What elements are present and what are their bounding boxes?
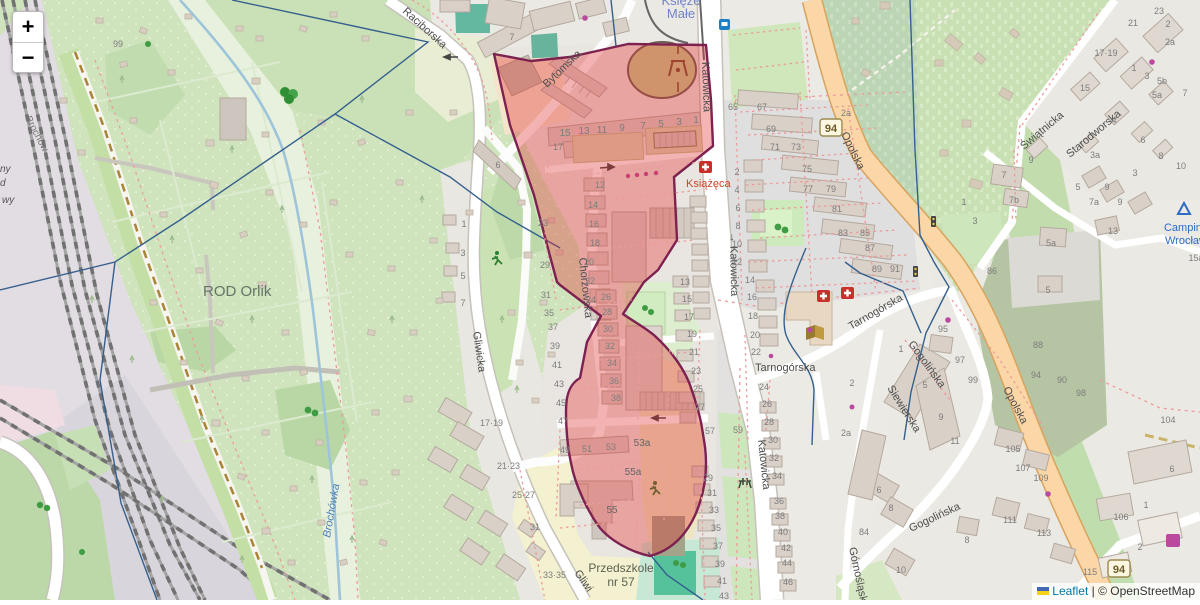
svg-text:5b: 5b bbox=[1157, 76, 1167, 86]
svg-text:7b: 7b bbox=[1009, 195, 1019, 205]
svg-text:8: 8 bbox=[1158, 151, 1163, 161]
svg-text:6: 6 bbox=[495, 160, 500, 170]
svg-text:12: 12 bbox=[732, 257, 742, 267]
svg-text:111: 111 bbox=[1003, 515, 1017, 525]
svg-text:wy: wy bbox=[2, 195, 15, 206]
svg-text:5a: 5a bbox=[1152, 90, 1162, 100]
svg-text:25: 25 bbox=[693, 384, 703, 394]
svg-text:43: 43 bbox=[554, 379, 564, 389]
svg-text:2a: 2a bbox=[841, 108, 851, 118]
svg-text:25·27: 25·27 bbox=[512, 490, 535, 500]
svg-text:89: 89 bbox=[872, 264, 882, 274]
svg-text:Małe: Małe bbox=[667, 6, 695, 21]
svg-text:16: 16 bbox=[589, 219, 599, 229]
svg-text:95: 95 bbox=[938, 324, 948, 334]
svg-text:53: 53 bbox=[606, 442, 616, 452]
svg-text:8: 8 bbox=[964, 535, 969, 545]
svg-text:36: 36 bbox=[774, 496, 784, 506]
svg-text:99: 99 bbox=[113, 39, 123, 49]
svg-text:9: 9 bbox=[1117, 197, 1122, 207]
svg-text:106: 106 bbox=[1113, 512, 1128, 522]
svg-text:ROD Orlik: ROD Orlik bbox=[203, 283, 272, 300]
svg-text:15: 15 bbox=[1080, 83, 1090, 93]
svg-text:20: 20 bbox=[750, 330, 760, 340]
svg-text:99: 99 bbox=[968, 375, 978, 385]
svg-text:97: 97 bbox=[955, 355, 965, 365]
svg-text:10: 10 bbox=[1176, 161, 1186, 171]
svg-text:11: 11 bbox=[597, 125, 608, 136]
svg-text:d: d bbox=[0, 178, 6, 189]
svg-text:1: 1 bbox=[693, 115, 699, 126]
svg-text:21: 21 bbox=[1128, 18, 1138, 28]
svg-text:32: 32 bbox=[769, 453, 779, 463]
svg-text:35: 35 bbox=[544, 308, 554, 318]
svg-text:109: 109 bbox=[1033, 473, 1048, 483]
svg-text:31: 31 bbox=[541, 290, 551, 300]
svg-text:3: 3 bbox=[460, 248, 465, 258]
svg-text:Camping: Camping bbox=[1164, 222, 1200, 234]
svg-text:41: 41 bbox=[717, 576, 727, 586]
svg-text:27: 27 bbox=[695, 402, 705, 412]
svg-text:Tarnogórska: Tarnogórska bbox=[755, 362, 816, 374]
svg-text:39: 39 bbox=[715, 559, 725, 569]
svg-text:5a: 5a bbox=[1046, 238, 1056, 248]
svg-text:15: 15 bbox=[682, 294, 692, 304]
svg-text:90: 90 bbox=[1057, 375, 1067, 385]
svg-text:1: 1 bbox=[1131, 63, 1136, 73]
svg-text:30: 30 bbox=[768, 435, 778, 445]
svg-text:34: 34 bbox=[772, 471, 782, 481]
svg-text:9: 9 bbox=[1104, 182, 1109, 192]
svg-text:10: 10 bbox=[732, 239, 742, 249]
svg-text:104: 104 bbox=[1160, 415, 1175, 425]
svg-text:22: 22 bbox=[751, 347, 761, 357]
svg-text:Książęca: Książęca bbox=[686, 178, 732, 190]
svg-text:17: 17 bbox=[553, 142, 563, 152]
svg-text:29: 29 bbox=[703, 473, 713, 483]
svg-text:2: 2 bbox=[849, 378, 854, 388]
svg-text:43: 43 bbox=[719, 591, 729, 600]
svg-text:2: 2 bbox=[734, 167, 739, 177]
svg-text:23: 23 bbox=[691, 366, 701, 376]
svg-text:3: 3 bbox=[1132, 168, 1137, 178]
svg-text:41: 41 bbox=[552, 360, 562, 370]
svg-text:37: 37 bbox=[713, 541, 723, 551]
svg-text:10: 10 bbox=[896, 565, 906, 575]
svg-text:3: 3 bbox=[972, 216, 977, 226]
svg-text:13: 13 bbox=[578, 126, 590, 137]
svg-text:5: 5 bbox=[1075, 182, 1080, 192]
svg-text:81: 81 bbox=[832, 204, 842, 214]
svg-text:1: 1 bbox=[961, 197, 966, 207]
svg-text:57: 57 bbox=[705, 426, 715, 436]
svg-text:29: 29 bbox=[540, 260, 550, 270]
svg-text:115: 115 bbox=[1083, 567, 1097, 577]
svg-text:32: 32 bbox=[605, 341, 615, 351]
svg-text:44: 44 bbox=[782, 558, 792, 568]
svg-text:7: 7 bbox=[1182, 88, 1187, 98]
svg-text:59: 59 bbox=[733, 425, 743, 435]
svg-text:8: 8 bbox=[888, 503, 893, 513]
svg-text:5: 5 bbox=[460, 271, 465, 281]
svg-text:2: 2 bbox=[1137, 542, 1142, 552]
svg-text:39: 39 bbox=[550, 341, 560, 351]
svg-text:13: 13 bbox=[680, 277, 690, 287]
svg-text:40: 40 bbox=[778, 527, 788, 537]
svg-text:98: 98 bbox=[1076, 388, 1086, 398]
svg-text:14: 14 bbox=[588, 200, 598, 210]
svg-text:71: 71 bbox=[770, 142, 780, 152]
svg-text:55: 55 bbox=[606, 505, 618, 516]
svg-text:Wrocław: Wrocław bbox=[1165, 235, 1200, 247]
svg-text:18: 18 bbox=[748, 311, 758, 321]
svg-text:7: 7 bbox=[640, 121, 646, 132]
svg-text:37: 37 bbox=[548, 322, 558, 332]
svg-text:3: 3 bbox=[676, 117, 682, 128]
svg-text:17·19: 17·19 bbox=[480, 418, 503, 428]
svg-text:18: 18 bbox=[590, 238, 600, 248]
svg-text:6: 6 bbox=[1140, 135, 1145, 145]
svg-text:ny: ny bbox=[0, 164, 12, 175]
svg-text:75: 75 bbox=[802, 164, 812, 174]
svg-text:7: 7 bbox=[460, 298, 465, 308]
svg-text:7: 7 bbox=[509, 32, 514, 42]
svg-text:2: 2 bbox=[1165, 19, 1170, 29]
svg-text:51: 51 bbox=[582, 444, 592, 454]
svg-text:23: 23 bbox=[1154, 6, 1164, 16]
svg-text:30: 30 bbox=[603, 324, 613, 334]
svg-text:94: 94 bbox=[1113, 564, 1126, 576]
svg-text:7a: 7a bbox=[1089, 197, 1099, 207]
svg-text:26: 26 bbox=[762, 399, 772, 409]
svg-text:15: 15 bbox=[559, 128, 571, 139]
svg-text:67: 67 bbox=[757, 102, 767, 112]
svg-text:94: 94 bbox=[1031, 370, 1041, 380]
svg-text:38: 38 bbox=[611, 393, 621, 403]
svg-text:1: 1 bbox=[1143, 500, 1148, 510]
svg-text:2a: 2a bbox=[841, 428, 851, 438]
svg-text:45: 45 bbox=[556, 398, 566, 408]
svg-text:107: 107 bbox=[1015, 463, 1030, 473]
svg-text:85: 85 bbox=[860, 228, 870, 238]
svg-text:4: 4 bbox=[734, 185, 739, 195]
svg-text:34: 34 bbox=[607, 358, 617, 368]
svg-text:28: 28 bbox=[764, 417, 774, 427]
svg-text:11: 11 bbox=[950, 436, 959, 446]
svg-text:22: 22 bbox=[585, 276, 595, 286]
svg-text:17: 17 bbox=[684, 312, 694, 322]
svg-text:94: 94 bbox=[825, 123, 838, 135]
svg-text:5: 5 bbox=[658, 119, 664, 130]
svg-text:24: 24 bbox=[759, 382, 769, 392]
svg-text:21·23: 21·23 bbox=[497, 461, 520, 471]
svg-text:24: 24 bbox=[586, 295, 596, 305]
svg-text:Przedszkole: Przedszkole bbox=[588, 561, 654, 575]
svg-text:6: 6 bbox=[1169, 464, 1174, 474]
svg-text:1: 1 bbox=[898, 344, 903, 354]
svg-text:1: 1 bbox=[461, 219, 466, 229]
svg-text:53a: 53a bbox=[634, 438, 651, 449]
svg-text:33·35: 33·35 bbox=[543, 570, 566, 580]
svg-text:15a: 15a bbox=[1188, 253, 1200, 263]
svg-text:9: 9 bbox=[1028, 155, 1033, 165]
svg-text:nr 57: nr 57 bbox=[607, 575, 635, 589]
svg-text:5: 5 bbox=[922, 380, 927, 390]
svg-text:6: 6 bbox=[735, 203, 740, 213]
svg-text:6: 6 bbox=[876, 485, 881, 495]
svg-text:14: 14 bbox=[745, 275, 755, 285]
svg-text:16: 16 bbox=[747, 292, 757, 302]
svg-text:26: 26 bbox=[601, 292, 611, 302]
svg-text:47: 47 bbox=[558, 416, 568, 426]
svg-text:79: 79 bbox=[826, 184, 836, 194]
svg-text:84: 84 bbox=[859, 527, 869, 537]
svg-text:38: 38 bbox=[775, 511, 785, 521]
svg-text:13: 13 bbox=[1108, 226, 1118, 236]
svg-text:8: 8 bbox=[735, 221, 740, 231]
svg-text:4: 4 bbox=[1111, 115, 1116, 125]
svg-text:20: 20 bbox=[584, 257, 594, 267]
svg-text:46: 46 bbox=[783, 577, 793, 587]
svg-text:17·19: 17·19 bbox=[1094, 48, 1117, 58]
svg-text:91: 91 bbox=[890, 264, 900, 274]
svg-text:105: 105 bbox=[1005, 444, 1020, 454]
svg-text:31: 31 bbox=[707, 488, 717, 498]
svg-text:23: 23 bbox=[538, 218, 548, 228]
svg-text:35: 35 bbox=[711, 523, 721, 533]
svg-text:87: 87 bbox=[865, 243, 875, 253]
svg-text:5: 5 bbox=[1045, 285, 1050, 295]
svg-text:88: 88 bbox=[1033, 340, 1043, 350]
svg-text:55a: 55a bbox=[625, 467, 642, 478]
svg-text:86: 86 bbox=[987, 266, 997, 276]
svg-text:42: 42 bbox=[781, 543, 791, 553]
svg-text:19: 19 bbox=[687, 329, 697, 339]
svg-text:9: 9 bbox=[619, 123, 625, 134]
svg-text:3: 3 bbox=[1144, 71, 1149, 81]
svg-text:Katowicka: Katowicka bbox=[699, 62, 713, 113]
svg-text:69: 69 bbox=[766, 124, 776, 134]
svg-text:49: 49 bbox=[560, 445, 570, 455]
svg-text:7: 7 bbox=[1001, 170, 1006, 180]
svg-text:36: 36 bbox=[609, 376, 619, 386]
svg-text:33: 33 bbox=[709, 505, 719, 515]
svg-text:65: 65 bbox=[728, 102, 738, 112]
svg-text:83: 83 bbox=[838, 228, 848, 238]
svg-text:31: 31 bbox=[530, 522, 540, 532]
svg-text:9: 9 bbox=[938, 412, 943, 422]
svg-text:2a: 2a bbox=[1165, 37, 1175, 47]
svg-text:77: 77 bbox=[803, 184, 813, 194]
svg-text:28: 28 bbox=[602, 307, 612, 317]
svg-text:12: 12 bbox=[595, 180, 605, 190]
svg-text:73: 73 bbox=[791, 142, 801, 152]
svg-text:113: 113 bbox=[1037, 528, 1051, 538]
svg-text:3a: 3a bbox=[1090, 150, 1100, 160]
svg-text:21: 21 bbox=[689, 347, 699, 357]
